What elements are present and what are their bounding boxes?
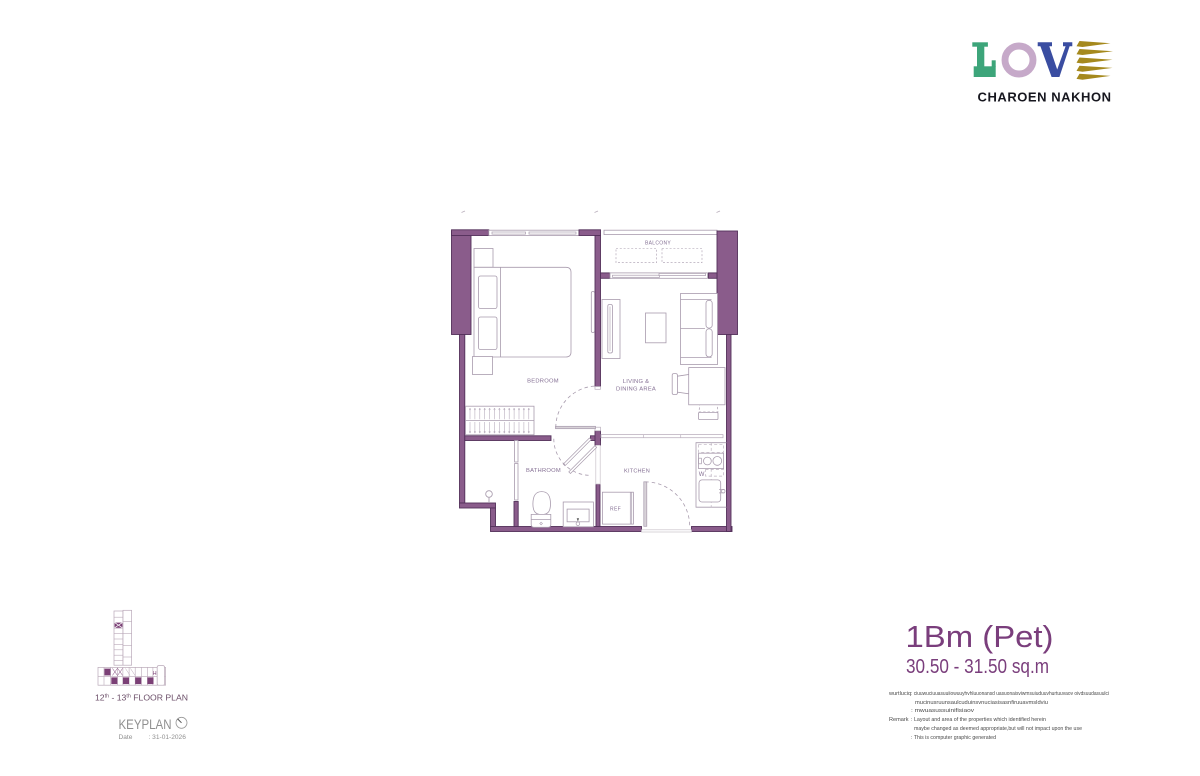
svg-text:: Layout and area of the prope: : Layout and area of the properties whic…	[911, 717, 1046, 723]
svg-text:1Bm (Pet): 1Bm (Pet)	[906, 619, 1054, 654]
svg-text:BEDROOM: BEDROOM	[527, 379, 559, 385]
svg-text:: mwuasussuinifisiaov: : mwuasussuinifisiaov	[911, 708, 974, 714]
svg-text:KEYPLAN: KEYPLAN	[119, 717, 172, 732]
svg-text:DINING AREA: DINING AREA	[616, 387, 656, 393]
svg-text:KITCHEN: KITCHEN	[624, 469, 650, 475]
svg-text:BATHROOM: BATHROOM	[526, 468, 561, 474]
svg-text:H: H	[153, 671, 157, 677]
svg-text:Remark: Remark	[889, 717, 909, 723]
svg-text:30.50 - 31.50 sq.m: 30.50 - 31.50 sq.m	[906, 656, 1049, 678]
svg-text:CHAROEN NAKHON: CHAROEN NAKHON	[978, 90, 1112, 105]
svg-text:: ciuuwuciuuasuuiiowuuyhvhluuo: : ciuuwuciuuasuuiiowuuyhvhluuonansd uasu…	[911, 691, 1109, 697]
svg-text:mucinusruunsaulcuduinsvnuciasi: mucinusruunsaulcuduinsvnuciasisasnfiruua…	[915, 700, 1048, 706]
svg-text:LIVING &: LIVING &	[623, 379, 649, 385]
svg-text:BALCONY: BALCONY	[645, 241, 671, 247]
svg-text:wurtluciq: wurtluciq	[888, 691, 911, 697]
svg-text:Date: Date	[119, 734, 133, 741]
svg-text:maybe changed as deemed approp: maybe changed as deemed appropriate,but …	[914, 726, 1082, 732]
svg-text:W: W	[699, 472, 705, 478]
svg-text:: 31-01-2026: : 31-01-2026	[149, 734, 187, 741]
svg-text:REF: REF	[610, 507, 621, 513]
svg-text:: This is computer graphic gen: : This is computer graphic generated	[911, 735, 996, 741]
svg-text:12th - 13th FLOOR PLAN: 12th - 13th FLOOR PLAN	[95, 693, 188, 703]
